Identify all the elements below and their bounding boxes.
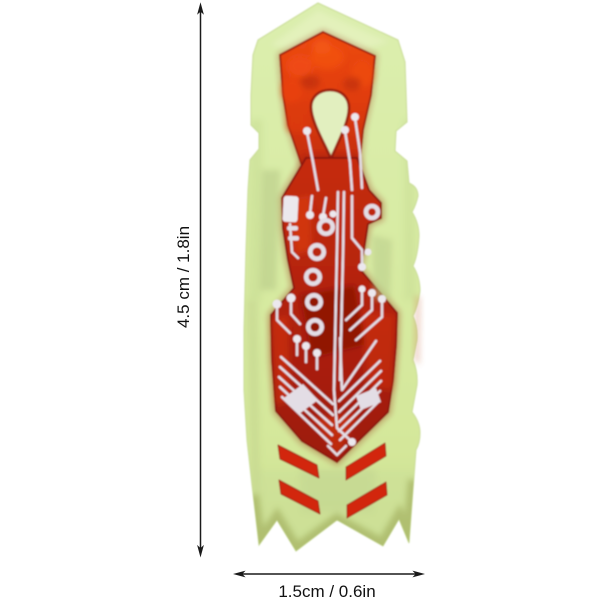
svg-text:1.5cm / 0.6in: 1.5cm / 0.6in [278,582,375,600]
svg-text:4.5 cm / 1.8in: 4.5 cm / 1.8in [174,226,193,328]
